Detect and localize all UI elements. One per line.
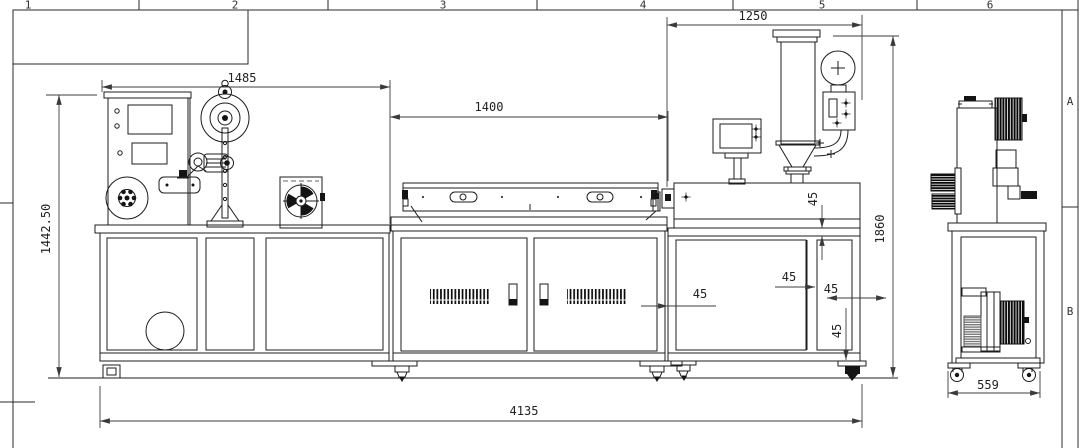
barrel-heatsink-fins xyxy=(995,98,1022,140)
vent-grille-right xyxy=(567,289,627,304)
vent-grille-left xyxy=(430,289,490,304)
drawing-sheet: 1 2 3 4 5 6 A B xyxy=(0,0,1081,448)
dim-cooling-width: 1400 xyxy=(475,100,504,114)
dim-extruder-width: 1250 xyxy=(739,9,768,23)
winder-display-screen xyxy=(128,105,172,134)
grid-column-5: 5 xyxy=(819,0,826,12)
dim-left-height: 1442.50 xyxy=(39,204,53,255)
dim-winder-width: 1485 xyxy=(228,71,257,85)
cutter-pedestal xyxy=(280,177,325,228)
front-view xyxy=(48,30,898,382)
winder-unit xyxy=(104,80,249,227)
belt-pulley-stack xyxy=(931,174,957,191)
cooling-trough xyxy=(402,183,660,222)
monitor-screen xyxy=(720,124,752,148)
grid-row-b: B xyxy=(1067,305,1074,318)
title-block xyxy=(13,10,248,64)
grid-column-1: 1 xyxy=(25,0,32,12)
side-view xyxy=(931,96,1046,382)
leveling-feet xyxy=(103,361,866,382)
dim-offset-panel-right: 45 xyxy=(824,282,838,296)
cooling-base-cabinet xyxy=(391,217,667,361)
winder-base-cabinet xyxy=(95,225,390,361)
loader-control-box xyxy=(823,92,855,130)
winder-control-window xyxy=(132,143,167,164)
drive-motor xyxy=(1000,301,1024,344)
sheet-border: 1 2 3 4 5 6 A B xyxy=(0,0,1078,448)
grid-column-4: 4 xyxy=(640,0,647,12)
dim-offset-foot: 45 xyxy=(830,324,844,338)
grid-column-6: 6 xyxy=(987,0,994,12)
dim-side-depth: 559 xyxy=(977,378,999,392)
dim-extruder-height: 1860 xyxy=(873,215,887,244)
grid-row-a: A xyxy=(1067,95,1074,108)
take-up-reel xyxy=(106,177,148,219)
extrusion-line-engineering-drawing: 1 2 3 4 5 6 A B xyxy=(0,0,1081,448)
coil-inside-cabinet xyxy=(146,312,184,350)
dim-total-length: 4135 xyxy=(510,404,539,418)
grid-column-3: 3 xyxy=(440,0,447,12)
dim-offset-panel-left: 45 xyxy=(782,270,796,284)
grid-column-2: 2 xyxy=(232,0,239,12)
dimension-annotations: 1485 1400 1250 1442.50 1860 45 45 45 45 … xyxy=(39,9,1040,428)
extruder-unit xyxy=(662,30,860,361)
dim-offset-barrel: 45 xyxy=(806,192,820,206)
hopper xyxy=(773,30,820,183)
dim-offset-cabinet-edge: 45 xyxy=(693,287,707,301)
control-monitor xyxy=(713,119,761,184)
hopper-loader-blower xyxy=(814,51,855,158)
